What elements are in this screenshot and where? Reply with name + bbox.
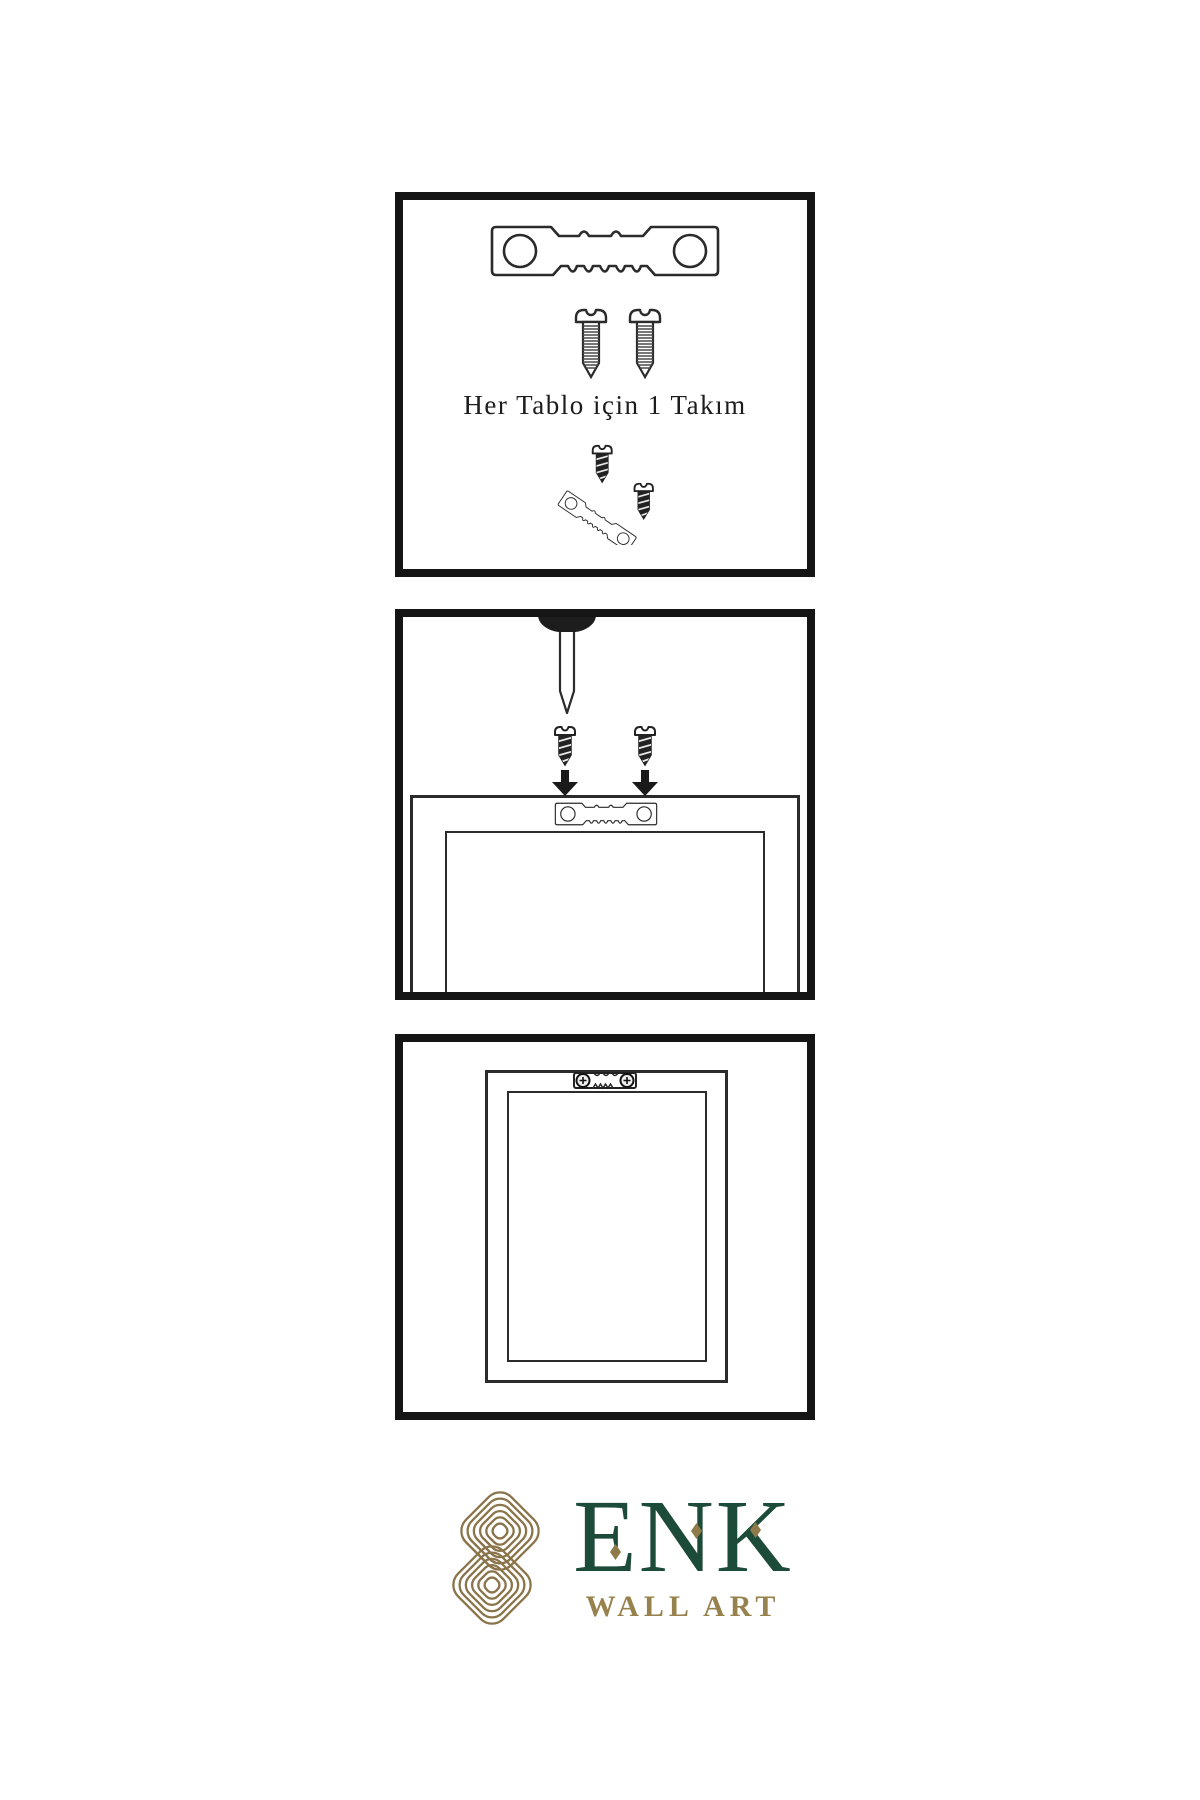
arrow-down-icon xyxy=(632,770,658,796)
frame-inner xyxy=(507,1091,707,1362)
step-panel-mounting xyxy=(395,609,815,1000)
kit-caption: Her Tablo için 1 Takım xyxy=(403,390,807,421)
sawtooth-hanger-icon xyxy=(489,224,721,278)
instruction-sheet: Her Tablo için 1 Takım xyxy=(0,0,1200,1800)
knot-icon xyxy=(432,1482,560,1634)
brand-logo: ENK WALL ART xyxy=(420,1478,820,1648)
brand-subtitle: WALL ART xyxy=(558,1590,808,1624)
screw-icon xyxy=(625,306,665,382)
brand-text: ENK WALL ART xyxy=(558,1494,808,1624)
screw-icon xyxy=(629,724,661,768)
installed-hanger-icon xyxy=(572,1071,638,1091)
screw-icon xyxy=(549,724,581,768)
screw-icon xyxy=(571,306,611,382)
step-panel-hung-frame xyxy=(395,1034,815,1420)
frame-back-inner xyxy=(445,831,765,1000)
step-panel-hardware-kit: Her Tablo için 1 Takım xyxy=(395,192,815,577)
arrow-down-icon xyxy=(552,770,578,796)
sawtooth-hanger-icon xyxy=(554,801,658,827)
screw-into-hanger-icon xyxy=(549,443,685,545)
brand-wordmark: ENK xyxy=(558,1494,808,1580)
wall-nail-icon xyxy=(535,615,599,719)
